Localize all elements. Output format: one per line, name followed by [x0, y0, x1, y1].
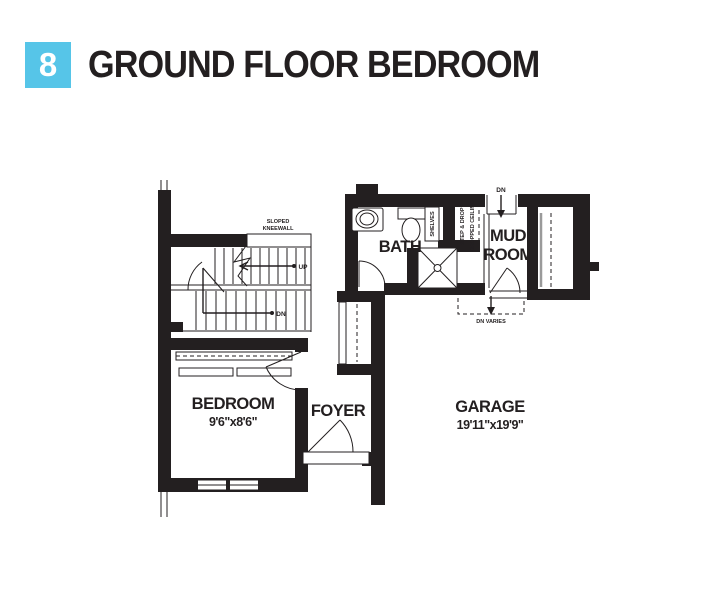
mudroom-door	[489, 268, 527, 298]
foyer-label: FOYER	[311, 402, 366, 420]
dropped-ceiling-label: DROPPED CEILING	[470, 200, 476, 251]
stair-treads-lower	[196, 291, 305, 330]
garage-label: GARAGE	[455, 398, 525, 416]
dn-varies-label: DN VARIES	[476, 319, 506, 325]
mudroom-dn-steps: DN	[487, 187, 516, 218]
up-label: UP	[298, 264, 308, 271]
kneewall-note-line1: SLOPED	[267, 219, 290, 225]
sink	[352, 208, 383, 231]
garage: GARAGE 19'11"x19'9"	[455, 398, 525, 432]
shelves-closet: SHELVES	[425, 207, 439, 241]
mudroom-closet	[541, 213, 551, 287]
bath-door	[359, 261, 385, 287]
bedroom-window	[194, 480, 262, 490]
toilet	[398, 208, 425, 242]
dn-varies-steps: DN VARIES	[458, 296, 524, 325]
kneewall-note-line2: KNEEWALL	[263, 226, 295, 232]
bedroom-dims: 9'6"x8'6"	[209, 415, 258, 429]
dn-label: DN	[276, 311, 286, 318]
floor-plan-page: 8 GROUND FLOOR BEDROOM	[0, 0, 708, 597]
front-door	[303, 420, 369, 464]
shelves-label: SHELVES	[430, 211, 436, 237]
bedroom: BEDROOM 9'6"x8'6"	[176, 352, 301, 490]
floor-plan-svg: UP DN SLOPED KNEEWALL	[0, 0, 708, 597]
shower	[418, 248, 457, 288]
under-stair-door	[188, 262, 224, 292]
up-arrow: UP	[240, 262, 308, 271]
garage-dims: 19'11"x19'9"	[457, 418, 524, 432]
bedroom-closet	[176, 352, 292, 376]
foyer-closet	[339, 302, 357, 364]
mudroom-label-line2: ROOM	[483, 246, 532, 264]
mudroom-dn-label: DN	[496, 187, 506, 194]
step-drop-label: STEP & DROP	[460, 207, 466, 245]
mudroom-label-line1: MUD	[490, 227, 527, 245]
bedroom-label: BEDROOM	[192, 395, 275, 413]
bath-label: BATH	[379, 238, 422, 256]
foyer: FOYER	[303, 302, 369, 464]
